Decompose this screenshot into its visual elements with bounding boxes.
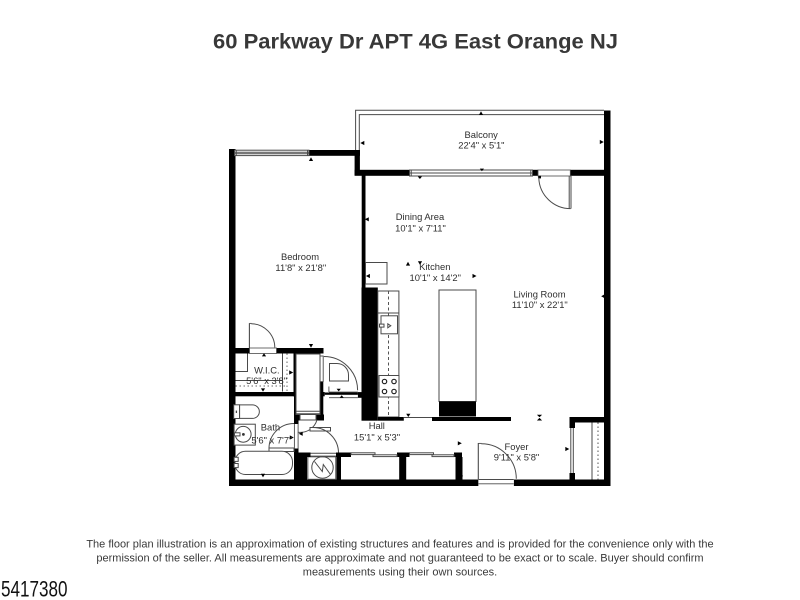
svg-text:permission of the seller. All: permission of the seller. All measuremen…: [96, 553, 703, 565]
svg-text:Kitchen: Kitchen: [419, 261, 450, 272]
svg-text:9'11" x 5'8": 9'11" x 5'8": [494, 452, 540, 463]
svg-text:Foyer: Foyer: [505, 441, 529, 452]
svg-text:5'6" x 7'7": 5'6" x 7'7": [251, 434, 292, 445]
svg-text:11'8" x 21'8": 11'8" x 21'8": [275, 262, 326, 273]
svg-text:Balcony: Balcony: [465, 129, 499, 140]
svg-text:15'1" x 5'3": 15'1" x 5'3": [354, 432, 400, 443]
svg-text:22'4" x 5'1": 22'4" x 5'1": [458, 140, 504, 151]
svg-text:Living Room: Living Room: [513, 288, 565, 299]
svg-text:Hall: Hall: [369, 420, 385, 431]
svg-text:W.I.C.: W.I.C.: [254, 364, 280, 375]
svg-text:5417380: 5417380: [1, 577, 68, 600]
svg-text:Bedroom: Bedroom: [281, 251, 319, 262]
svg-text:11'10" x 22'1": 11'10" x 22'1": [512, 299, 568, 310]
svg-text:Bath: Bath: [261, 422, 280, 433]
svg-text:10'1" x 7'11": 10'1" x 7'11": [395, 223, 446, 234]
svg-text:Dining Area: Dining Area: [396, 211, 445, 222]
svg-text:measurements using their own s: measurements using their own sources.: [303, 567, 497, 579]
svg-text:The floor plan illustration is: The floor plan illustration is an approx…: [86, 539, 713, 551]
svg-text:5'6" x 3'8": 5'6" x 3'8": [246, 375, 287, 386]
svg-text:60 Parkway Dr APT 4G East Oran: 60 Parkway Dr APT 4G East Orange NJ: [213, 30, 618, 54]
svg-text:10'1" x 14'2": 10'1" x 14'2": [409, 272, 460, 283]
